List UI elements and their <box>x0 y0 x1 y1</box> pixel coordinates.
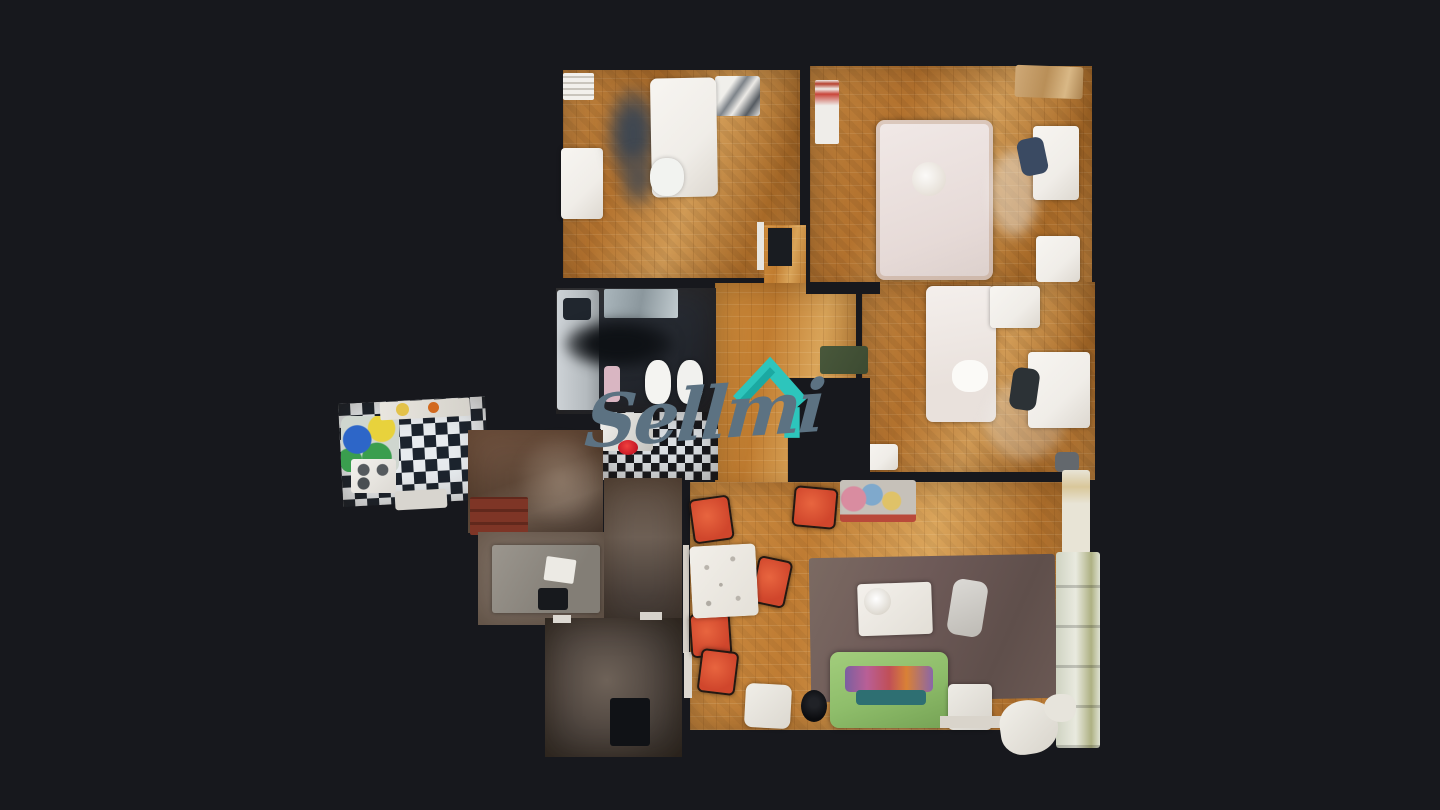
wall-edge-white-left <box>683 545 689 653</box>
door-frame <box>757 222 764 270</box>
kitchen-table <box>395 489 448 511</box>
desk-top-left-bedroom <box>561 148 603 219</box>
dining-table <box>689 543 759 618</box>
black-fan <box>801 690 827 722</box>
curtain-blob-small <box>1044 694 1076 722</box>
dining-chair-2 <box>791 485 838 530</box>
sofa-teal-cushions <box>856 690 926 705</box>
watermark-wordmark: Sellmi <box>583 369 826 458</box>
dining-chair-1 <box>688 494 735 544</box>
gray-chair <box>1055 452 1079 472</box>
watermark: Sellmi <box>585 350 845 480</box>
desk-black-mat <box>538 588 568 610</box>
dresser <box>563 73 594 100</box>
bed-blanket-fold <box>952 360 988 392</box>
red-brown-cabinet <box>470 497 528 535</box>
bedside-cabinet <box>990 286 1040 328</box>
threshold-right <box>640 612 662 620</box>
yellow-item <box>396 403 409 416</box>
bathroom-mirror-counter <box>604 289 678 318</box>
single-bed <box>926 286 996 422</box>
bottom-wall-light <box>940 716 1002 728</box>
dollhouse-3d-floorplan-view[interactable]: Sellmi <box>0 0 1440 810</box>
white-armchair <box>744 683 792 729</box>
threshold-left <box>553 615 571 623</box>
washing-machine-door <box>563 298 591 320</box>
dark-object <box>610 698 650 746</box>
wall-above-hall <box>806 282 880 294</box>
bed-pillow-top-left <box>650 158 684 196</box>
wall-corner-white <box>684 652 692 698</box>
mirror-unit <box>715 76 760 116</box>
sideboard <box>840 480 916 522</box>
desk-paper <box>543 556 576 584</box>
orange-item <box>428 402 439 413</box>
open-door-leaf <box>768 228 792 266</box>
round-pillow <box>912 162 946 196</box>
cabinet-bottom-right <box>1036 236 1080 282</box>
double-bed <box>876 120 993 280</box>
table-bowl <box>864 588 891 615</box>
radiator <box>1062 470 1090 554</box>
cardboard-boxes <box>1014 65 1083 99</box>
stove <box>351 459 396 493</box>
dining-chair-5 <box>696 648 739 696</box>
shelf-unit <box>815 80 839 144</box>
hallway-column-floor <box>604 478 682 626</box>
sofa-floral-pillows <box>845 666 933 692</box>
